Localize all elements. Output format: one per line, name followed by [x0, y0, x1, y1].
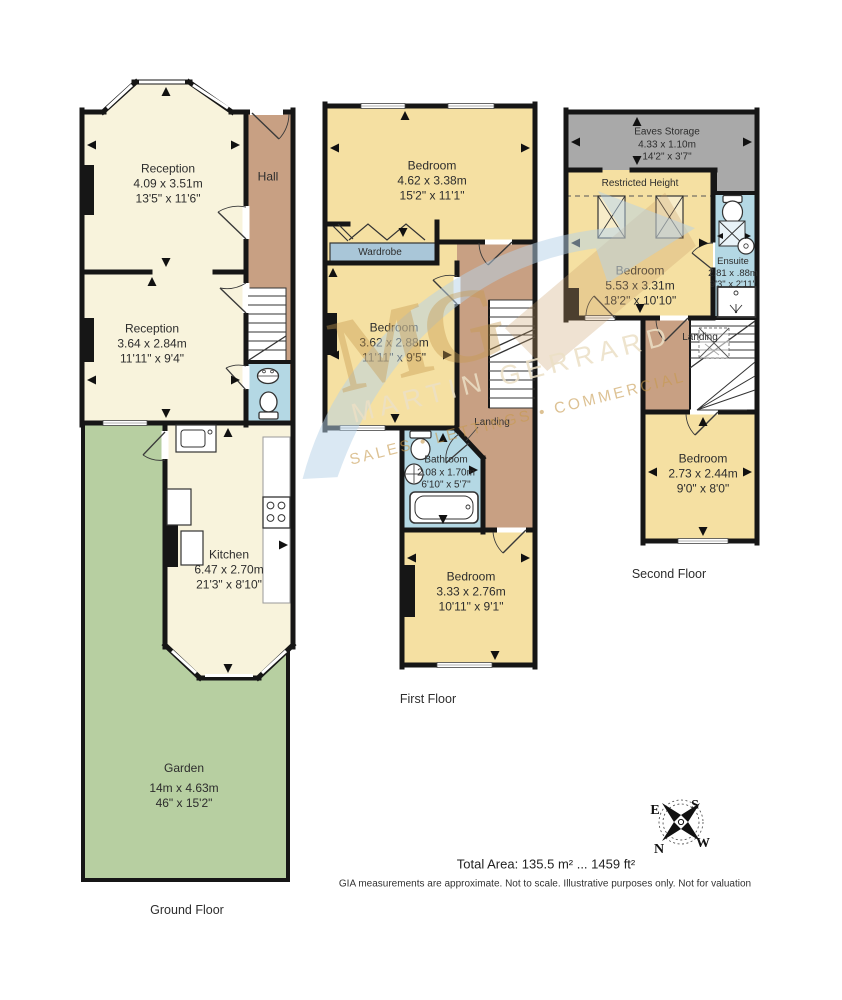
- compass-s-label: S: [691, 798, 699, 813]
- room-label-gf-reception1: Reception 4.09 x 3.51m 13'5" x 11'6": [133, 162, 202, 207]
- room-label-ff-bedroom2: Bedroom 3.62 x 2.88m 11'11" x 9'5": [359, 321, 428, 366]
- floorplan-canvas: E S N W Reception 4.09 x 3.51m 13'5" x 1…: [0, 0, 842, 1000]
- room-label-eaves-storage: Eaves Storage 4.33 x 1.10m 14'2" x 3'7": [634, 126, 700, 164]
- ensuite-basin-icon: [738, 238, 754, 254]
- room-label-restricted-height: Restricted Height: [602, 178, 679, 191]
- kitchen-appliance: [167, 489, 191, 525]
- room-label-garden: Garden 14m x 4.63m 46" x 15'2": [149, 761, 218, 811]
- kitchen-sink-icon: [176, 425, 216, 452]
- floorplan-drawing: E S N W: [0, 0, 842, 1000]
- room-label-wardrobe: Wardrobe: [358, 247, 402, 260]
- stove-icon: [263, 497, 290, 528]
- gf-staircase: [248, 288, 286, 362]
- room-label-gf-reception2: Reception 3.64 x 2.84m 11'11" x 9'4": [117, 322, 186, 367]
- room-label-gf-hall: Hall: [258, 170, 279, 185]
- second-floor-label: Second Floor: [632, 567, 706, 581]
- ensuite-toilet-icon: [723, 196, 743, 224]
- wc-sink-icon: [258, 369, 279, 384]
- compass-rose: E S N W: [650, 798, 710, 857]
- room-label-ff-landing: Landing: [474, 417, 510, 430]
- compass-n-label: N: [654, 842, 664, 857]
- first-floor-label: First Floor: [400, 692, 456, 706]
- room-label-ff-bedroom3: Bedroom 3.33 x 2.76m 10'11" x 9'1": [436, 570, 505, 615]
- wc-toilet-icon: [259, 392, 278, 419]
- ground-floor-label: Ground Floor: [150, 903, 224, 917]
- disclaimer-text: GIA measurements are approximate. Not to…: [339, 879, 751, 890]
- ff-staircase: [489, 300, 535, 408]
- compass-w-label: W: [696, 836, 710, 851]
- room-label-sf-bedroom1: Bedroom 5.53 x 3.31m 18'2" x 10'10": [604, 264, 677, 309]
- room-label-bathroom: Bathroom 2.08 x 1.70m 6'10" x 5'7": [417, 454, 475, 492]
- room-label-sf-landing: Landing: [682, 332, 718, 345]
- room-label-kitchen: Kitchen 6.47 x 2.70m 21'3" x 8'10": [194, 548, 263, 593]
- compass-e-label: E: [650, 803, 659, 818]
- room-label-ensuite: Ensuite 2.81 x .88m 9'3" x 2'11": [708, 256, 758, 291]
- skylight-icon: [656, 196, 683, 238]
- total-area-text: Total Area: 135.5 m² ... 1459 ft²: [457, 857, 635, 872]
- skylight-icon: [598, 196, 625, 238]
- room-label-ff-bedroom1: Bedroom 4.62 x 3.38m 15'2" x 11'1": [397, 159, 466, 204]
- room-label-sf-bedroom2: Bedroom 2.73 x 2.44m 9'0" x 8'0": [668, 452, 737, 497]
- shower-icon: [718, 287, 756, 317]
